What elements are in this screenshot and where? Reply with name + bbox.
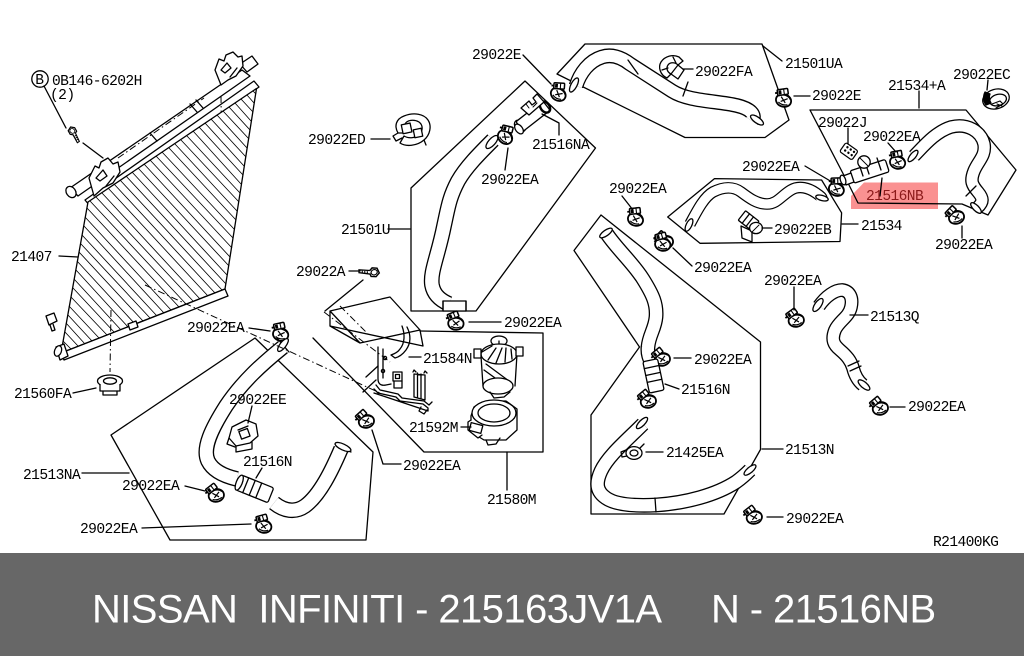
svg-text:21584N: 21584N	[423, 352, 472, 368]
svg-text:29022A: 29022A	[296, 265, 346, 281]
svg-text:29022EA: 29022EA	[863, 130, 921, 146]
svg-text:21592M: 21592M	[409, 421, 458, 437]
svg-text:R21400KG: R21400KG	[933, 535, 998, 551]
svg-text:29022EA: 29022EA	[694, 261, 752, 277]
svg-text:21560FA: 21560FA	[14, 387, 72, 403]
svg-text:29022E: 29022E	[812, 89, 861, 105]
svg-text:21516N: 21516N	[681, 383, 730, 399]
svg-text:29022EA: 29022EA	[122, 479, 180, 495]
svg-text:B: B	[35, 73, 44, 89]
svg-text:29022EA: 29022EA	[403, 459, 461, 475]
svg-text:29022EA: 29022EA	[764, 274, 822, 290]
svg-text:29022ED: 29022ED	[308, 133, 366, 149]
svg-text:N - 21516NB: N - 21516NB	[711, 588, 936, 632]
svg-text:21513Q: 21513Q	[870, 310, 920, 326]
svg-text:29022FA: 29022FA	[695, 65, 753, 81]
svg-text:29022EA: 29022EA	[694, 353, 752, 369]
svg-text:21513N: 21513N	[785, 443, 834, 459]
svg-text:21534: 21534	[861, 219, 903, 235]
svg-text:29022EA: 29022EA	[504, 316, 562, 332]
svg-text:(2): (2)	[50, 88, 74, 104]
svg-text:21516NA: 21516NA	[532, 138, 590, 154]
svg-text:29022EB: 29022EB	[774, 223, 832, 239]
svg-text:29022J: 29022J	[818, 116, 867, 132]
svg-text:29022EA: 29022EA	[935, 238, 993, 254]
svg-text:21407: 21407	[11, 250, 52, 266]
svg-text:29022EA: 29022EA	[609, 182, 667, 198]
svg-text:29022EA: 29022EA	[80, 522, 138, 538]
svg-text:29022EA: 29022EA	[481, 173, 539, 189]
svg-text:21534+A: 21534+A	[888, 79, 946, 95]
svg-text:29022EA: 29022EA	[742, 160, 800, 176]
svg-text:29022E: 29022E	[472, 48, 521, 64]
svg-text:NISSAN INFINITI - 215163JV1A: NISSAN INFINITI - 215163JV1A	[92, 588, 662, 632]
svg-text:21516NB: 21516NB	[866, 189, 924, 205]
svg-text:21580M: 21580M	[487, 493, 536, 509]
svg-text:21513NA: 21513NA	[23, 468, 81, 484]
svg-text:29022EA: 29022EA	[786, 512, 844, 528]
svg-text:29022EE: 29022EE	[229, 393, 286, 409]
svg-text:21501UA: 21501UA	[785, 57, 843, 73]
svg-text:21501U: 21501U	[341, 223, 390, 239]
svg-text:21425EA: 21425EA	[666, 446, 724, 462]
svg-text:29022EA: 29022EA	[908, 400, 966, 416]
svg-text:29022EA: 29022EA	[187, 321, 245, 337]
svg-text:21516N: 21516N	[243, 455, 292, 471]
svg-text:29022EC: 29022EC	[953, 68, 1011, 84]
